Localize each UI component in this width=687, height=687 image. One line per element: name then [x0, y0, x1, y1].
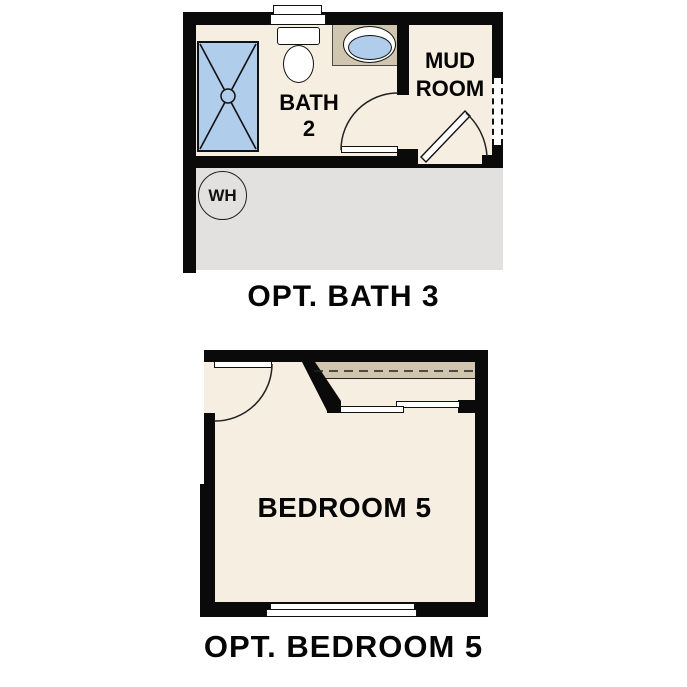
bedroom-floor	[214, 362, 475, 602]
bath-door-hinge-wall	[397, 149, 418, 168]
closet-right-jamb	[458, 400, 475, 413]
bath-left-wall	[183, 12, 196, 273]
closet-sliding-door-left	[340, 406, 404, 413]
bath-window-outer	[270, 14, 326, 25]
closet-left-jamb	[327, 401, 341, 413]
water-heater-circle: WH	[198, 171, 247, 220]
closet-sliding-door-right	[396, 401, 460, 408]
mudroom-door-threshold	[418, 164, 482, 168]
opt-bedroom-5-caption: OPT. BEDROOM 5	[0, 630, 687, 663]
shower-pan	[197, 41, 259, 152]
toilet-bowl	[283, 45, 314, 83]
opt-bath-3-caption: OPT. BATH 3	[0, 281, 687, 313]
bedroom-door-leaf	[214, 361, 272, 368]
bath-top-wall	[183, 12, 503, 25]
bath-window-inner	[273, 5, 322, 15]
toilet-tank	[277, 27, 320, 45]
bath-bottom-wall	[183, 156, 418, 168]
bath2-label-line1: BATH	[262, 90, 356, 116]
mudroom-bottom-wall	[482, 155, 503, 168]
mudroom-room-label: MUD ROOM	[403, 47, 497, 103]
bedroom-left-wall-lower	[200, 484, 215, 617]
mudroom-label-line1: MUD	[403, 47, 497, 75]
floorplan-sheet: WH	[0, 0, 687, 687]
bath-door-leaf	[341, 146, 398, 153]
bedroom-doorway-floor	[204, 362, 214, 413]
mudroom-label-line2: ROOM	[403, 75, 497, 103]
bedroom-window-outer	[266, 609, 417, 617]
bath2-room-label: BATH 2	[262, 90, 356, 142]
bath2-label-line2: 2	[262, 116, 356, 142]
sink-basin	[348, 35, 392, 60]
bedroom5-room-label: BEDROOM 5	[214, 492, 475, 524]
water-heater-label: WH	[208, 186, 236, 206]
bedroom-left-wall-upper	[204, 413, 215, 484]
closet-shelf	[313, 362, 475, 379]
bedroom-right-wall	[475, 350, 488, 617]
